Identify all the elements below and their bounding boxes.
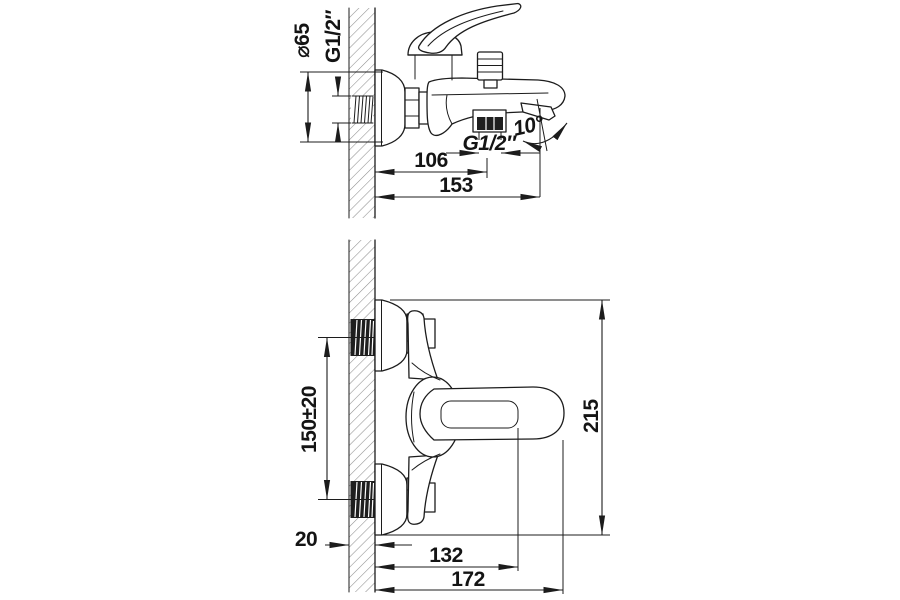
escutcheon-side (375, 70, 432, 146)
technical-drawing-page: ⌀65 G1/2″ G1/2″ 10° 106 (0, 0, 900, 600)
lever-handle-plan (420, 387, 564, 440)
wall-section-plan (349, 240, 375, 592)
plan-view: 150±20 215 20 132 172 (295, 240, 610, 594)
dim-label-153: 153 (439, 174, 473, 197)
dim-label-132: 132 (429, 544, 463, 567)
dim-label-diameter-65: ⌀65 (291, 23, 314, 58)
dim-wall-thread: G1/2″ (322, 9, 351, 142)
valve-column (415, 55, 452, 80)
dim-label-wall-thread: G1/2″ (322, 9, 345, 63)
faucet-installation-drawing: ⌀65 G1/2″ G1/2″ 10° 106 (0, 0, 900, 600)
dim-label-106: 106 (414, 149, 448, 172)
dim-label-150-20: 150±20 (298, 386, 321, 453)
wall-thread-side (351, 96, 373, 123)
dim-153: 153 (375, 174, 540, 197)
dim-label-20: 20 (295, 528, 317, 551)
hex-nut-side (405, 88, 419, 128)
side-view: ⌀65 G1/2″ G1/2″ 10° 106 (291, 4, 567, 219)
dim-label-215: 215 (580, 399, 603, 433)
dim-label-angle: 10° (511, 111, 547, 140)
faucet-body-side (408, 4, 565, 136)
dim-label-outlet-thread: G1/2″ (462, 132, 517, 155)
wall-hatch (349, 240, 375, 592)
outlet-thread-dark (477, 117, 503, 130)
dim-label-172: 172 (451, 568, 485, 591)
dim-spout-angle: 10° (511, 99, 567, 197)
lever-handle-side (419, 4, 521, 54)
